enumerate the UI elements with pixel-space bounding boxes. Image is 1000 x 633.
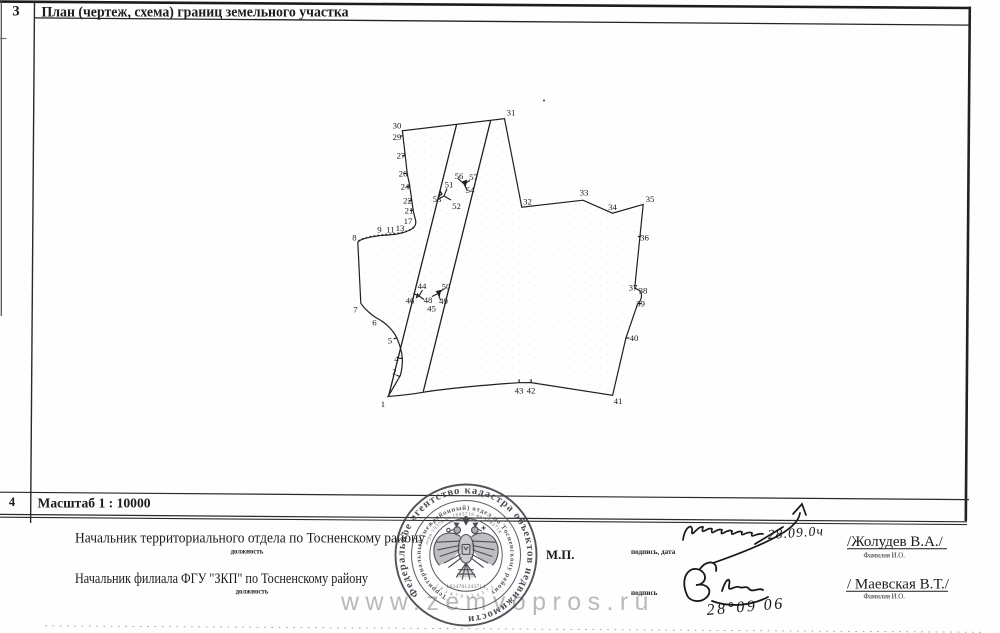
svg-text:Масштаб 1 : 10000: Масштаб 1 : 10000 [38,496,151,511]
svg-text:45: 45 [427,304,436,314]
svg-text:6: 6 [372,318,377,328]
svg-text:2: 2 [392,367,396,377]
svg-text:8: 8 [352,233,357,243]
svg-text:подпись: подпись [631,589,658,597]
svg-text:42: 42 [527,386,536,396]
svg-text:43: 43 [515,386,524,396]
svg-text:М.П.: М.П. [546,547,575,562]
svg-text:53: 53 [433,194,442,204]
svg-text:52: 52 [452,201,461,211]
svg-text:44: 44 [418,281,427,291]
svg-text:29: 29 [393,132,402,142]
svg-text:46: 46 [406,296,415,306]
svg-text:4: 4 [394,354,399,364]
svg-text:33: 33 [580,188,589,198]
svg-text:Фамилия И.О.: Фамилия И.О. [864,553,906,560]
svg-text:/ Маевская В.Т./: / Маевская В.Т./ [847,577,950,593]
svg-text:Фамилия И.О.: Фамилия И.О. [864,594,906,601]
svg-text:7: 7 [353,305,358,315]
svg-text:51: 51 [445,180,454,190]
svg-text:30: 30 [393,121,402,131]
svg-text:54: 54 [466,185,475,195]
svg-text:24: 24 [401,182,410,192]
svg-text:22: 22 [403,196,412,206]
svg-text:37: 37 [629,283,638,293]
svg-text:57: 57 [469,172,478,182]
svg-text:27: 27 [397,151,406,161]
svg-text:План (чертеж, схема) границ зе: План (чертеж, схема) границ земельного у… [42,5,349,21]
svg-text:/Жолудев В.А./: /Жолудев В.А./ [847,534,944,550]
svg-text:9: 9 [377,225,382,235]
svg-text:17: 17 [404,216,413,226]
svg-text:11: 11 [386,225,394,235]
svg-text:1834701243714: 1834701243714 [447,585,486,590]
svg-text:4: 4 [9,495,16,509]
svg-text:35: 35 [646,194,655,204]
svg-text:49: 49 [439,296,448,306]
svg-text:40: 40 [630,333,639,343]
svg-text:31: 31 [507,108,516,118]
svg-text:38: 38 [639,286,648,296]
svg-text:39: 39 [636,299,645,309]
svg-text:должность: должность [236,589,269,596]
svg-text:3: 3 [12,4,19,20]
svg-text:подпись, дата: подпись, дата [631,548,676,556]
svg-text:Начальник территориального отд: Начальник территориального отдела по Тос… [75,531,426,547]
svg-text:должность: должность [231,549,264,556]
svg-text:21: 21 [405,206,414,216]
svg-text:50: 50 [442,282,451,292]
svg-text:1: 1 [381,399,385,409]
svg-text:26: 26 [399,169,408,179]
svg-text:Начальник филиала ФГУ "ЗКП" по: Начальник филиала ФГУ "ЗКП" по Тосненско… [75,571,369,587]
svg-text:56: 56 [455,171,464,181]
svg-text:41: 41 [614,396,623,406]
svg-text:5: 5 [388,336,393,346]
svg-text:36: 36 [640,233,649,243]
svg-text:34: 34 [608,202,617,212]
svg-text:32: 32 [523,197,532,207]
